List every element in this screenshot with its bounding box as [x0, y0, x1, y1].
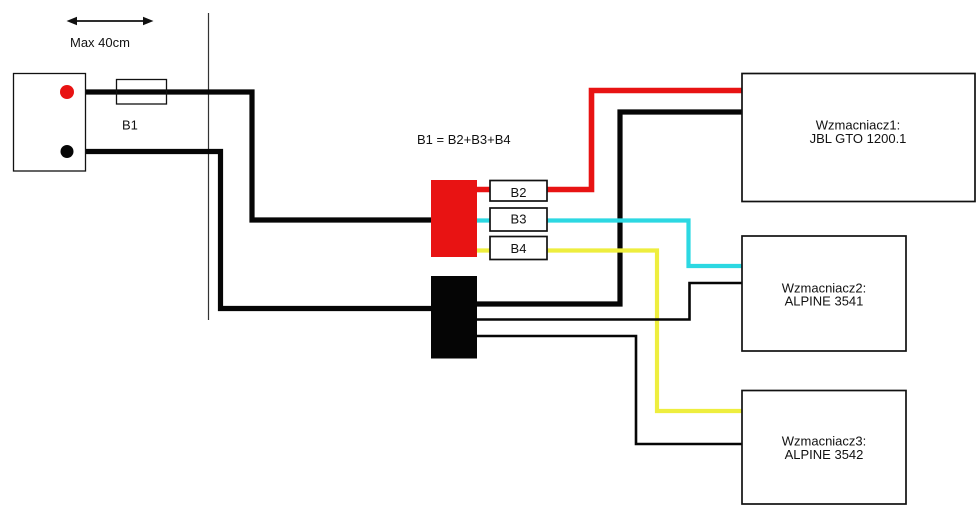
svg-text:B4: B4	[511, 241, 527, 256]
svg-text:B1 = B2+B3+B4: B1 = B2+B3+B4	[417, 132, 511, 147]
svg-text:ALPINE 3541: ALPINE 3541	[785, 294, 864, 309]
svg-text:ALPINE 3542: ALPINE 3542	[785, 447, 864, 462]
svg-text:B3: B3	[511, 212, 527, 227]
svg-text:B1: B1	[122, 118, 138, 133]
svg-text:JBL GTO 1200.1: JBL GTO 1200.1	[810, 131, 907, 146]
svg-text:B2: B2	[511, 185, 527, 200]
svg-text:Max 40cm: Max 40cm	[70, 35, 130, 50]
